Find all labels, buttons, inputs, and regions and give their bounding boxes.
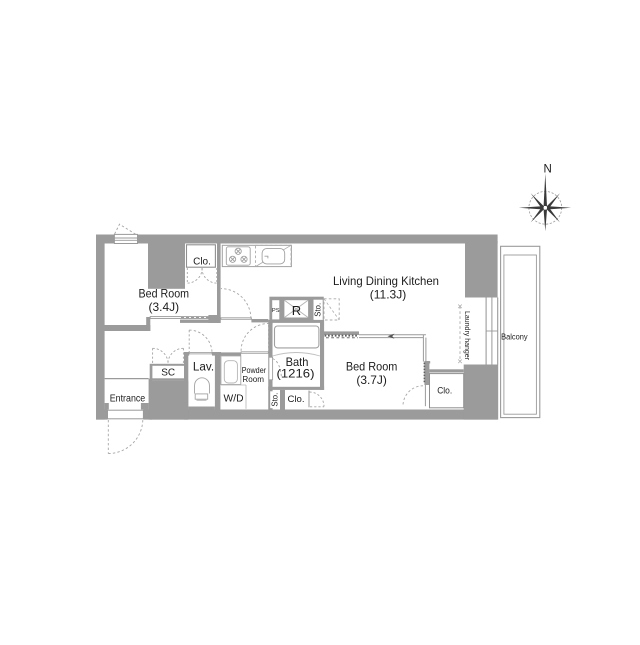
svg-text:Entrance: Entrance (110, 394, 146, 405)
svg-text:(3.4J): (3.4J) (149, 300, 180, 314)
svg-text:(3.7J): (3.7J) (356, 373, 387, 387)
svg-text:Balcony: Balcony (501, 332, 528, 341)
svg-text:Room: Room (242, 375, 264, 384)
svg-text:Sto.: Sto. (271, 393, 280, 407)
svg-text:Laundry hanger: Laundry hanger (463, 311, 470, 361)
svg-text:Clo.: Clo. (437, 386, 452, 397)
svg-text:R: R (292, 303, 301, 318)
svg-text:Bed Room: Bed Room (346, 360, 398, 374)
svg-text:W/D: W/D (223, 393, 243, 404)
svg-text:PS: PS (272, 308, 280, 314)
svg-text:(1216): (1216) (277, 367, 315, 381)
svg-text:Living Dining Kitchen: Living Dining Kitchen (333, 274, 439, 288)
svg-text:Clo.: Clo. (287, 394, 304, 405)
svg-text:Bed Room: Bed Room (139, 286, 190, 300)
svg-text:Lav.: Lav. (193, 361, 214, 373)
svg-text:N: N (543, 164, 551, 176)
svg-text:Clo.: Clo. (193, 256, 211, 267)
svg-text:Sto.: Sto. (314, 303, 323, 317)
svg-text:SC: SC (161, 368, 175, 379)
svg-text:(11.3J): (11.3J) (370, 287, 407, 301)
svg-text:Powder: Powder (242, 366, 267, 375)
